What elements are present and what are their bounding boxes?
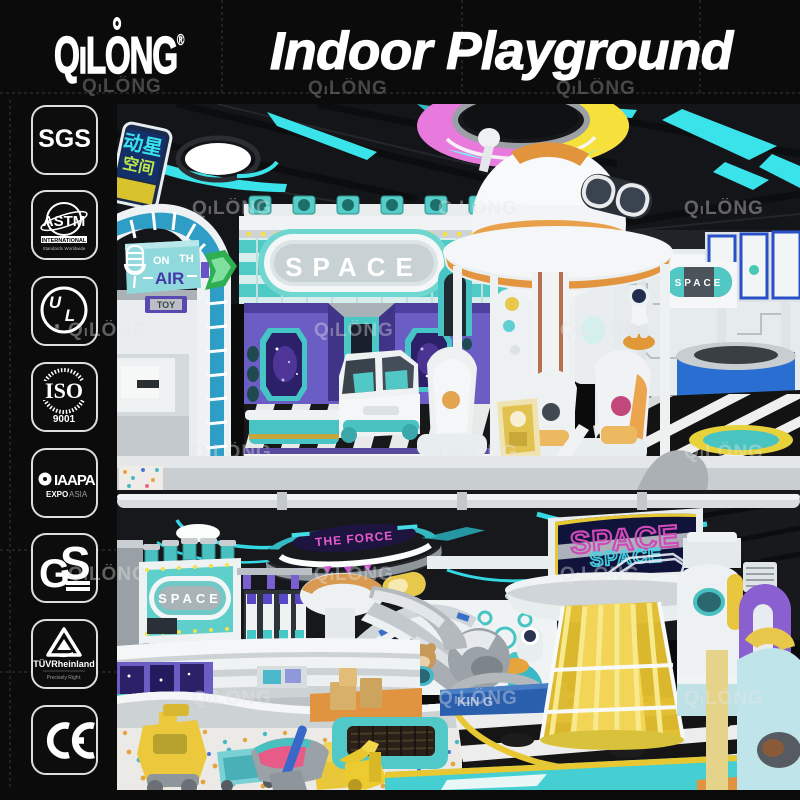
svg-text:INTERNATIONAL: INTERNATIONAL [42, 238, 87, 244]
svg-text:TOY: TOY [157, 300, 175, 310]
svg-text:TÜVRheinland: TÜVRheinland [33, 659, 95, 669]
svg-text:SPACE: SPACE [158, 591, 222, 606]
svg-text:AIR: AIR [155, 269, 184, 288]
svg-text:ON: ON [153, 255, 170, 267]
svg-text:ISO: ISO [45, 378, 83, 403]
svg-text:9001: 9001 [53, 414, 76, 425]
svg-text:Precisely Right.: Precisely Right. [47, 675, 82, 681]
svg-text:TH: TH [179, 253, 194, 265]
svg-text:Standards Worldwide: Standards Worldwide [43, 246, 86, 251]
svg-text:SPACE: SPACE [675, 278, 724, 289]
svg-text:EXPO: EXPO [46, 490, 68, 499]
svg-text:IAAPA: IAAPA [54, 472, 96, 489]
svg-text:ASIA: ASIA [69, 490, 88, 499]
svg-text:SPACE: SPACE [285, 252, 423, 282]
svg-text:®: ® [55, 324, 60, 331]
svg-text:U: U [49, 293, 62, 312]
